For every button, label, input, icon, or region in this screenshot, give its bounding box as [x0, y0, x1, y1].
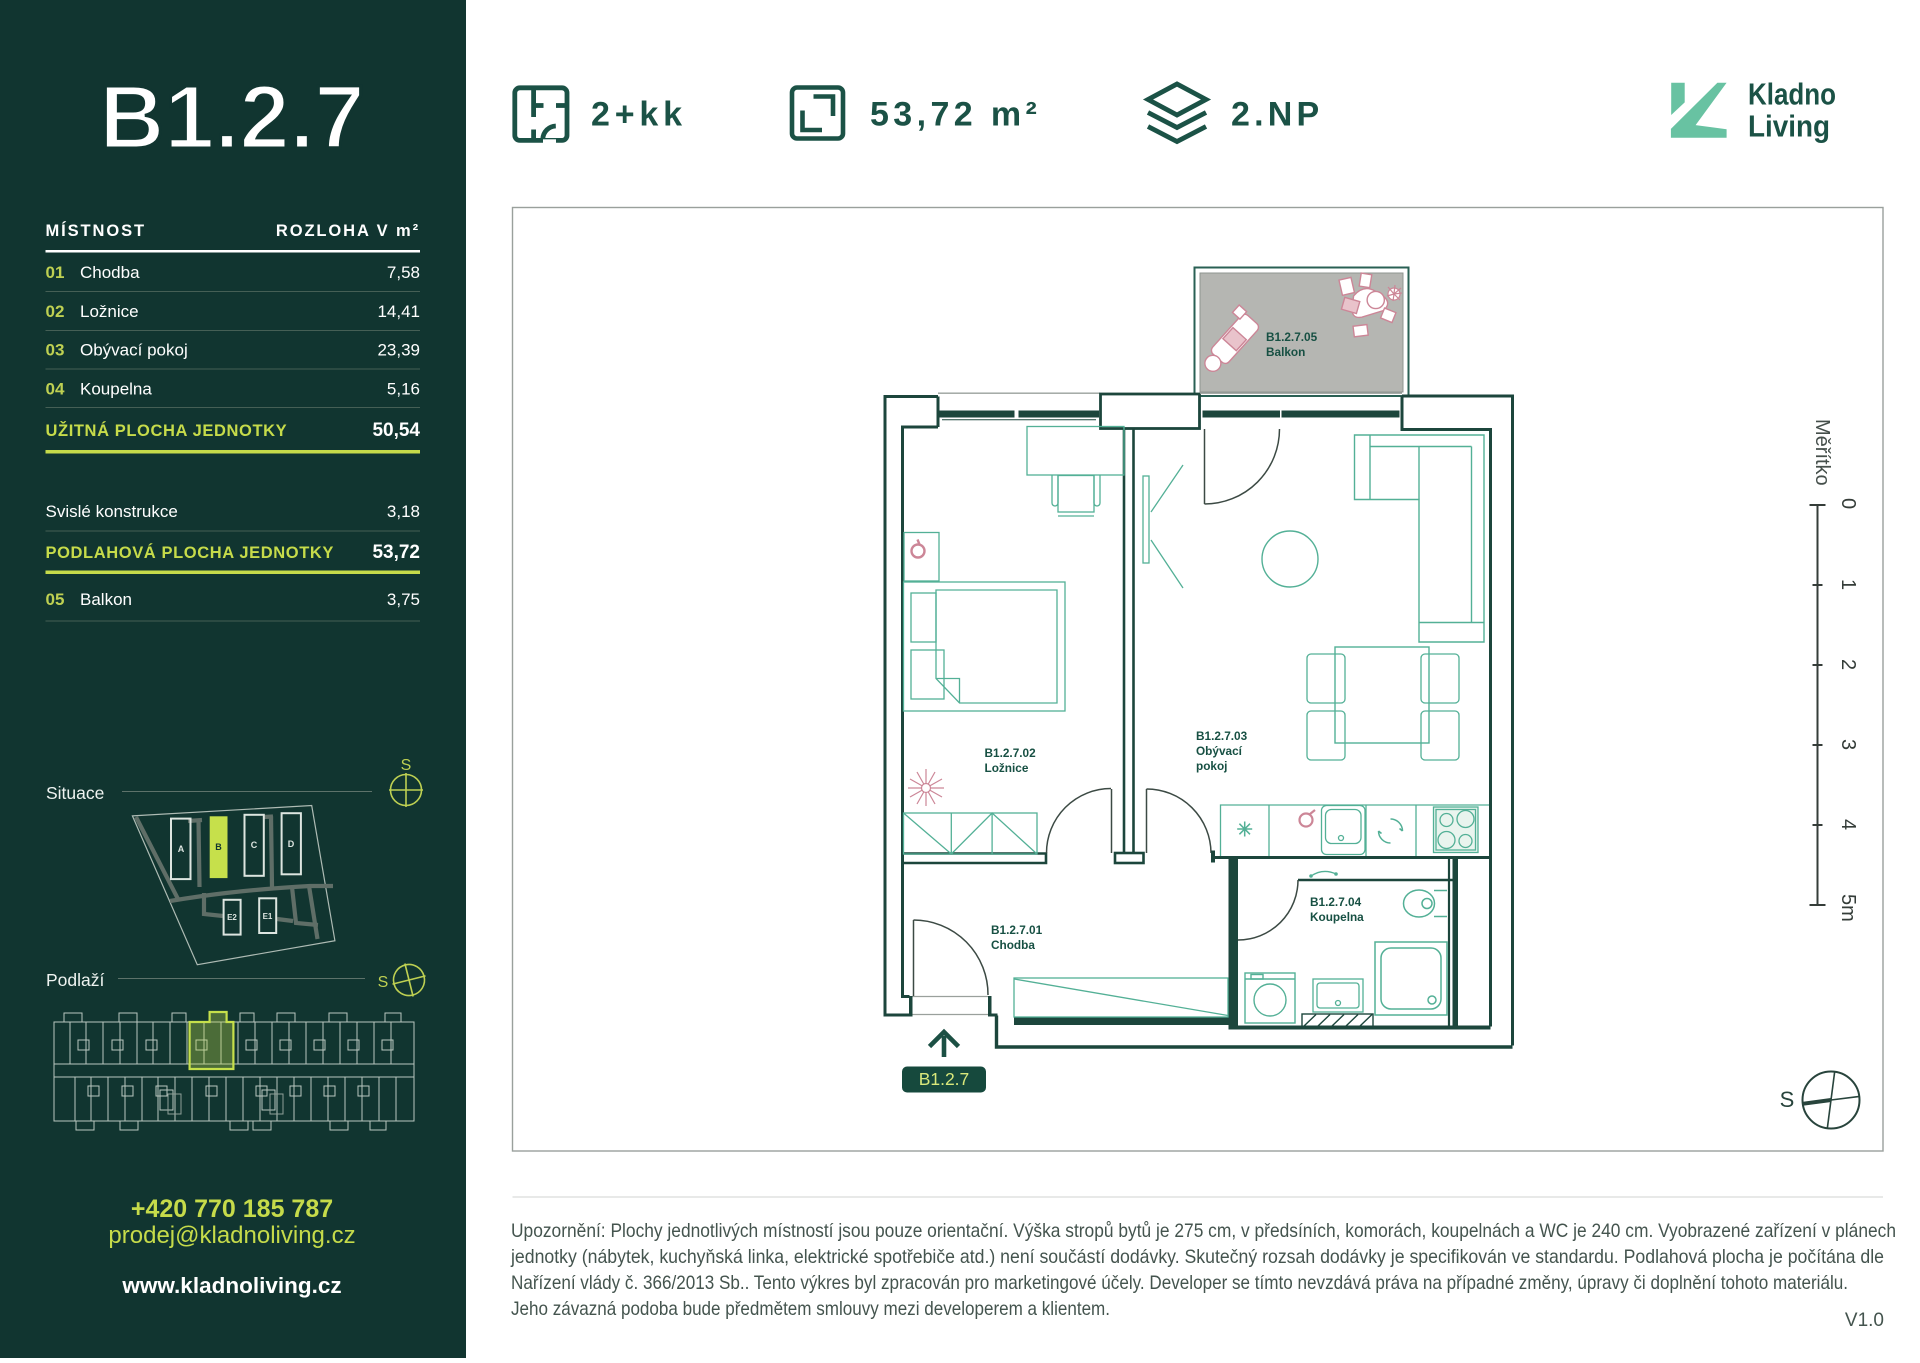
svg-text:V1.0: V1.0	[1845, 1310, 1884, 1331]
svg-text:01: 01	[46, 263, 65, 282]
svg-text:B1.2.7.03: B1.2.7.03	[1196, 729, 1248, 743]
svg-text:1: 1	[1837, 579, 1859, 590]
svg-text:prodej@kladnoliving.cz: prodej@kladnoliving.cz	[108, 1222, 355, 1249]
svg-text:Obývací: Obývací	[1196, 744, 1243, 758]
svg-text:Obývací pokoj: Obývací pokoj	[80, 341, 188, 360]
svg-text:3,75: 3,75	[387, 590, 420, 609]
svg-text:04: 04	[46, 380, 65, 399]
svg-text:C: C	[251, 840, 258, 850]
svg-text:7,58: 7,58	[387, 263, 420, 282]
svg-text:Svislé konstrukce: Svislé konstrukce	[46, 502, 178, 521]
svg-text:Balkon: Balkon	[1266, 345, 1305, 359]
svg-text:5,16: 5,16	[387, 380, 420, 399]
svg-text:Jeho závazná podoba bude předm: Jeho závazná podoba bude předmětem smlou…	[511, 1298, 1110, 1320]
svg-text:Měřítko: Měřítko	[1811, 419, 1833, 486]
svg-text:Situace: Situace	[46, 783, 104, 803]
svg-text:3,18: 3,18	[387, 502, 420, 521]
svg-text:2.NP: 2.NP	[1231, 96, 1323, 134]
svg-text:3: 3	[1837, 739, 1859, 750]
svg-text:B1.2.7.04: B1.2.7.04	[1310, 895, 1362, 909]
svg-text:4: 4	[1837, 819, 1859, 830]
svg-text:S: S	[401, 757, 412, 774]
svg-text:jednotky (nábytek, kuchyňská l: jednotky (nábytek, kuchyňská linka, elek…	[510, 1246, 1884, 1268]
svg-text:14,41: 14,41	[377, 302, 420, 321]
svg-text:Koupelna: Koupelna	[1310, 910, 1364, 924]
svg-text:53,72 m²: 53,72 m²	[870, 96, 1041, 134]
svg-text:50,54: 50,54	[372, 420, 420, 441]
svg-text:Koupelna: Koupelna	[80, 380, 152, 399]
svg-text:02: 02	[46, 302, 65, 321]
svg-text:MÍSTNOST: MÍSTNOST	[46, 221, 146, 240]
svg-text:Kladno: Kladno	[1748, 78, 1836, 112]
svg-text:Chodba: Chodba	[80, 263, 140, 282]
svg-text:S: S	[378, 974, 389, 991]
svg-text:A: A	[178, 844, 185, 854]
svg-text:B1.2.7.05: B1.2.7.05	[1266, 330, 1318, 344]
svg-text:Upozornění: Plochy jednotlivýc: Upozornění: Plochy jednotlivých místnost…	[511, 1220, 1896, 1242]
svg-text:0: 0	[1837, 498, 1859, 509]
svg-text:Ložnice: Ložnice	[985, 761, 1029, 775]
svg-text:B1.2.7.02: B1.2.7.02	[985, 746, 1037, 760]
svg-text:B1.2.7.01: B1.2.7.01	[991, 923, 1043, 937]
svg-text:Nařízení vlády č. 366/2013 Sb.: Nařízení vlády č. 366/2013 Sb.. Tento vý…	[511, 1272, 1848, 1294]
svg-text:UŽITNÁ PLOCHA JEDNOTKY: UŽITNÁ PLOCHA JEDNOTKY	[46, 421, 288, 440]
svg-text:05: 05	[46, 590, 65, 609]
svg-text:2+kk: 2+kk	[591, 96, 687, 134]
svg-text:E2: E2	[227, 913, 237, 922]
svg-text:5m: 5m	[1837, 894, 1859, 922]
svg-text:D: D	[288, 839, 295, 849]
svg-text:Ložnice: Ložnice	[80, 302, 139, 321]
svg-text:B1.2.7: B1.2.7	[919, 1069, 970, 1089]
svg-text:Chodba: Chodba	[991, 938, 1035, 952]
svg-text:2: 2	[1837, 659, 1859, 670]
svg-text:Living: Living	[1748, 110, 1830, 144]
svg-text:ROZLOHA V m²: ROZLOHA V m²	[276, 222, 420, 240]
svg-text:PODLAHOVÁ PLOCHA JEDNOTKY: PODLAHOVÁ PLOCHA JEDNOTKY	[46, 543, 335, 562]
svg-text:B: B	[215, 842, 222, 852]
svg-text:S: S	[1780, 1087, 1795, 1112]
svg-text:Podlaží: Podlaží	[46, 970, 105, 990]
svg-text:www.kladnoliving.cz: www.kladnoliving.cz	[121, 1273, 341, 1298]
svg-text:Balkon: Balkon	[80, 590, 132, 609]
svg-text:E1: E1	[263, 912, 273, 921]
svg-text:pokoj: pokoj	[1196, 759, 1227, 773]
svg-text:B1.2.7: B1.2.7	[99, 68, 364, 168]
svg-text:23,39: 23,39	[377, 341, 420, 360]
svg-text:53,72: 53,72	[372, 542, 420, 563]
svg-text:03: 03	[46, 341, 65, 360]
svg-text:+420 770 185 787: +420 770 185 787	[131, 1195, 333, 1223]
